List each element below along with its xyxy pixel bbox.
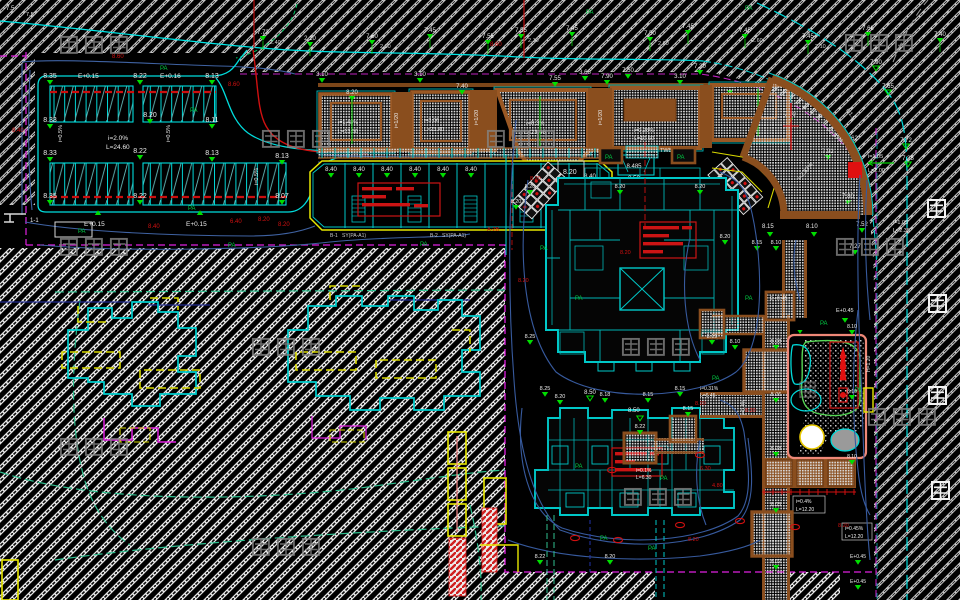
svg-text:8.13: 8.13 xyxy=(275,153,289,160)
svg-text:E+0.45: E+0.45 xyxy=(770,296,788,302)
svg-text:6.40: 6.40 xyxy=(230,219,242,225)
svg-text:8.07: 8.07 xyxy=(275,193,289,200)
svg-text:i=0.28%: i=0.28% xyxy=(634,128,654,134)
svg-text:7.90: 7.90 xyxy=(870,60,882,66)
svg-text:PA: PA xyxy=(677,155,685,161)
svg-text:L=13.50: L=13.50 xyxy=(338,129,358,135)
svg-text:PA: PA xyxy=(745,6,753,12)
svg-text:8.25: 8.25 xyxy=(525,334,536,340)
svg-text:8.40: 8.40 xyxy=(12,128,24,134)
svg-text:L=12.20: L=12.20 xyxy=(845,534,863,540)
svg-text:8.15: 8.15 xyxy=(643,392,654,398)
svg-text:PA: PA xyxy=(600,536,608,542)
svg-text:7.65: 7.65 xyxy=(882,84,894,90)
svg-text:7.45: 7.45 xyxy=(566,26,578,32)
svg-text:8.50: 8.50 xyxy=(584,390,596,396)
svg-text:E+0.45: E+0.45 xyxy=(836,308,854,314)
svg-text:PA: PA xyxy=(228,243,236,249)
svg-text:PA: PA xyxy=(660,476,668,482)
svg-text:8.40: 8.40 xyxy=(437,167,449,173)
svg-text:PA: PA xyxy=(712,376,720,382)
svg-text:8.20: 8.20 xyxy=(346,90,358,96)
svg-text:7.50: 7.50 xyxy=(622,68,634,74)
svg-text:i=3.06: i=3.06 xyxy=(424,118,439,124)
svg-text:L=10.60: L=10.60 xyxy=(634,136,654,142)
svg-text:8.10: 8.10 xyxy=(847,454,857,460)
svg-text:i=1.05: i=1.05 xyxy=(893,220,908,226)
svg-text:PA: PA xyxy=(745,296,753,302)
svg-text:3.10: 3.10 xyxy=(414,72,426,78)
svg-text:2.60: 2.60 xyxy=(752,38,763,44)
svg-text:L=24.60: L=24.60 xyxy=(106,144,130,151)
svg-text:8.20: 8.20 xyxy=(143,112,157,119)
svg-text:E+0.15: E+0.15 xyxy=(186,221,207,228)
svg-text:H=1.20: H=1.20 xyxy=(866,356,872,372)
svg-text:8.06: 8.06 xyxy=(771,392,782,398)
svg-text:L=2.00: L=2.00 xyxy=(868,168,885,174)
svg-text:2.10: 2.10 xyxy=(528,38,539,44)
svg-text:8.20: 8.20 xyxy=(620,250,631,256)
svg-text:8.08: 8.08 xyxy=(771,339,782,345)
svg-text:8.15: 8.15 xyxy=(683,406,694,412)
svg-text:8.20: 8.20 xyxy=(518,278,529,284)
svg-text:3.68: 3.68 xyxy=(579,70,591,76)
svg-text:7.5: 7.5 xyxy=(26,12,34,18)
svg-text:2.60: 2.60 xyxy=(380,44,391,50)
svg-text:7.45: 7.45 xyxy=(802,34,814,40)
svg-text:L=6.45: L=6.45 xyxy=(700,393,716,399)
svg-text:7.90: 7.90 xyxy=(601,74,613,80)
svg-text:8.11: 8.11 xyxy=(205,117,218,124)
svg-text:8.20: 8.20 xyxy=(615,184,626,190)
svg-text:PA: PA xyxy=(540,246,548,252)
svg-text:8.02: 8.02 xyxy=(771,559,782,565)
svg-text:7.55: 7.55 xyxy=(515,28,527,34)
svg-text:8.22: 8.22 xyxy=(133,148,147,155)
svg-text:i=0.5%: i=0.5% xyxy=(254,168,260,185)
svg-text:3.10: 3.10 xyxy=(316,72,328,78)
svg-text:PA: PA xyxy=(188,206,196,212)
svg-text:PA: PA xyxy=(160,66,168,72)
svg-text:7.55: 7.55 xyxy=(549,76,561,82)
svg-text:i=1.48%: i=1.48% xyxy=(338,120,358,126)
svg-text:SY(PA-A1): SY(PA-A1) xyxy=(442,233,466,239)
svg-text:PA: PA xyxy=(575,296,583,302)
svg-text:8.20: 8.20 xyxy=(278,222,290,228)
svg-text:B-2: B-2 xyxy=(430,233,438,239)
svg-text:7.30: 7.30 xyxy=(694,64,706,70)
svg-text:8.22: 8.22 xyxy=(535,554,546,560)
svg-text:7.40: 7.40 xyxy=(456,84,468,90)
svg-text:8.22: 8.22 xyxy=(133,73,147,80)
svg-text:PA: PA xyxy=(648,546,656,552)
svg-text:L=23.40: L=23.40 xyxy=(424,127,444,133)
svg-text:i=0.5%: i=0.5% xyxy=(58,125,64,142)
svg-text:8.60: 8.60 xyxy=(490,42,502,48)
svg-text:7.60: 7.60 xyxy=(366,34,378,40)
svg-text:6.30: 6.30 xyxy=(700,466,711,472)
svg-text:8.10: 8.10 xyxy=(806,224,818,230)
svg-text:L=12.20: L=12.20 xyxy=(796,507,814,513)
svg-text:8.22: 8.22 xyxy=(635,424,646,430)
svg-text:8.25: 8.25 xyxy=(540,386,551,392)
svg-text:8.35: 8.35 xyxy=(43,73,57,80)
svg-text:2.10: 2.10 xyxy=(815,44,826,50)
svg-text:8.40: 8.40 xyxy=(353,167,365,173)
svg-text:8.05: 8.05 xyxy=(771,502,782,508)
svg-text:8.40: 8.40 xyxy=(148,224,160,230)
svg-text:8.40: 8.40 xyxy=(325,167,337,173)
svg-text:8.20: 8.20 xyxy=(511,199,522,205)
svg-text:2.40: 2.40 xyxy=(270,40,281,46)
svg-text:4.80: 4.80 xyxy=(712,483,723,489)
svg-text:8.19: 8.19 xyxy=(707,334,718,340)
svg-text:2.10: 2.10 xyxy=(304,36,316,42)
svg-text:8.15: 8.15 xyxy=(762,224,774,230)
svg-text:E+0.15: E+0.15 xyxy=(78,73,99,80)
svg-text:8.35: 8.35 xyxy=(43,193,57,200)
svg-text:2.60: 2.60 xyxy=(658,41,669,47)
svg-text:8.13: 8.13 xyxy=(205,150,219,157)
svg-text:7.38: 7.38 xyxy=(902,156,914,162)
svg-text:PA: PA xyxy=(190,108,198,114)
svg-text:8.20: 8.20 xyxy=(688,537,699,543)
svg-text:i=2.0%: i=2.0% xyxy=(108,135,128,142)
svg-text:8.40: 8.40 xyxy=(409,167,421,173)
svg-text:8.10: 8.10 xyxy=(847,389,857,395)
svg-text:i=0.45%: i=0.45% xyxy=(845,526,864,532)
svg-text:SY(PA-A1): SY(PA-A1) xyxy=(342,233,366,239)
svg-text:8.15: 8.15 xyxy=(675,386,686,392)
svg-text:PA: PA xyxy=(586,10,594,16)
svg-text:8.20: 8.20 xyxy=(258,217,270,223)
svg-text:i=1/20: i=1/20 xyxy=(394,113,400,128)
svg-text:8.40: 8.40 xyxy=(381,167,393,173)
svg-text:8.50: 8.50 xyxy=(628,408,640,414)
svg-text:i=0.3%: i=0.3% xyxy=(526,121,545,127)
svg-text:8.20: 8.20 xyxy=(563,169,577,176)
svg-text:8.22: 8.22 xyxy=(133,193,147,200)
svg-text:8.60: 8.60 xyxy=(228,82,240,88)
svg-text:L=2.35: L=2.35 xyxy=(893,228,910,234)
svg-text:E+0.45: E+0.45 xyxy=(850,554,866,560)
svg-text:7.72: 7.72 xyxy=(257,30,269,36)
svg-text:8.10: 8.10 xyxy=(730,339,741,345)
svg-text:E+0.16: E+0.16 xyxy=(160,73,181,80)
svg-text:3.10: 3.10 xyxy=(674,74,686,80)
svg-text:8.20: 8.20 xyxy=(530,176,541,182)
svg-text:PA: PA xyxy=(820,321,828,327)
svg-text:PA: PA xyxy=(605,155,613,161)
svg-text:1-1: 1-1 xyxy=(30,218,39,224)
svg-text:i=1/20: i=1/20 xyxy=(598,110,604,125)
svg-text:7.66: 7.66 xyxy=(862,26,874,32)
svg-text:i=0.5%: i=0.5% xyxy=(166,125,172,142)
svg-text:8.08: 8.08 xyxy=(771,446,782,452)
svg-text:7.45: 7.45 xyxy=(739,28,751,34)
svg-text:8.10: 8.10 xyxy=(771,240,782,246)
svg-text:8.20: 8.20 xyxy=(695,184,706,190)
svg-text:8.20: 8.20 xyxy=(695,401,706,407)
svg-text:i=1.05: i=1.05 xyxy=(868,154,883,160)
svg-text:i=0.1%: i=0.1% xyxy=(636,468,652,474)
svg-text:E+0.45: E+0.45 xyxy=(850,579,866,585)
svg-text:8.10: 8.10 xyxy=(847,324,857,330)
svg-text:i=0.4%: i=0.4% xyxy=(796,499,812,505)
svg-text:B-1: B-1 xyxy=(330,233,338,239)
svg-text:8.20: 8.20 xyxy=(720,234,731,240)
svg-text:8.40: 8.40 xyxy=(465,167,477,173)
svg-text:PA: PA xyxy=(420,242,428,248)
svg-text:7.45: 7.45 xyxy=(682,24,694,30)
svg-text:7.5: 7.5 xyxy=(6,6,15,12)
svg-text:L=6.30: L=6.30 xyxy=(636,475,652,481)
svg-text:8.33: 8.33 xyxy=(43,117,57,124)
svg-text:8.30: 8.30 xyxy=(745,408,756,414)
svg-text:8.18: 8.18 xyxy=(600,392,611,398)
svg-text:i=1/20: i=1/20 xyxy=(474,110,480,125)
svg-text:7.40: 7.40 xyxy=(934,32,946,38)
svg-text:8.60: 8.60 xyxy=(112,54,124,60)
svg-text:7.50: 7.50 xyxy=(644,31,656,37)
svg-text:PA: PA xyxy=(575,464,583,470)
svg-text:7.45: 7.45 xyxy=(424,28,436,34)
svg-text:A-2B: A-2B xyxy=(487,227,500,233)
svg-text:PA: PA xyxy=(78,229,86,235)
svg-text:8.33: 8.33 xyxy=(43,150,57,157)
svg-text:8.13: 8.13 xyxy=(205,73,219,80)
svg-text:7.72: 7.72 xyxy=(900,138,912,144)
svg-text:7.55: 7.55 xyxy=(482,34,494,40)
svg-text:8.20: 8.20 xyxy=(555,394,566,400)
svg-text:8.20: 8.20 xyxy=(525,184,536,190)
svg-text:8.20: 8.20 xyxy=(605,554,616,560)
